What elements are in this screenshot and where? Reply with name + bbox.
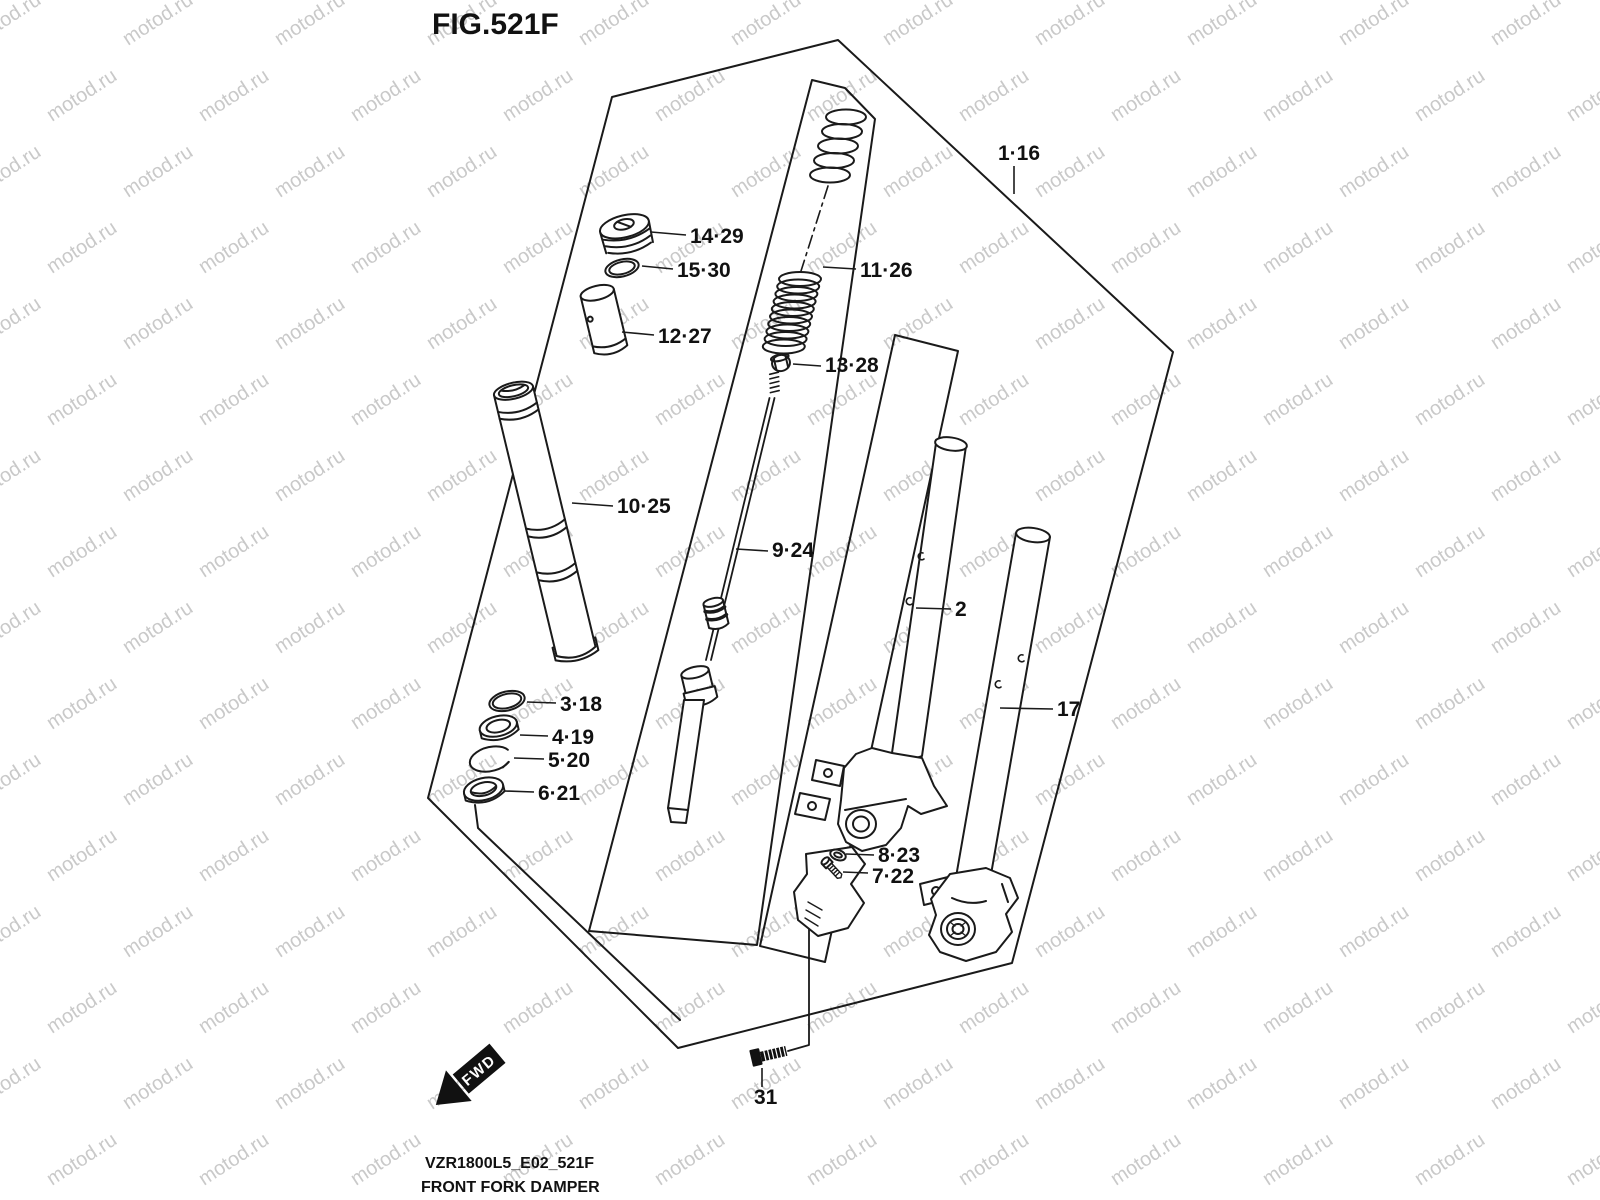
watermark-text: motod.ru xyxy=(1107,825,1185,886)
watermark-text: motod.ru xyxy=(0,445,45,506)
watermark-text: motod.ru xyxy=(1335,597,1413,658)
part-label-17: 17 xyxy=(1057,698,1080,721)
watermark-text: motod.ru xyxy=(1411,217,1489,278)
watermark-text: motod.ru xyxy=(43,369,121,430)
watermark-text: motod.ru xyxy=(879,1053,957,1114)
watermark-text: motod.ru xyxy=(347,977,425,1038)
watermark-text: motod.ru xyxy=(955,65,1033,126)
watermark-text: motod.ru xyxy=(271,749,349,810)
watermark-text: motod.ru xyxy=(1031,749,1109,810)
part-label-9-24: 9·24 xyxy=(772,539,814,562)
watermark-text: motod.ru xyxy=(1031,445,1109,506)
fork-cap-part-14-29 xyxy=(598,210,655,258)
watermark-text: motod.ru xyxy=(1183,0,1261,50)
watermark-text: motod.ru xyxy=(1487,749,1565,810)
watermark-text: motod.ru xyxy=(43,521,121,582)
leader-line-3-18 xyxy=(527,702,556,703)
watermark-text: motod.ru xyxy=(1563,673,1600,734)
watermark-text: motod.ru xyxy=(803,65,881,126)
watermark-text: motod.ru xyxy=(119,293,197,354)
watermark-text: motod.ru xyxy=(727,597,805,658)
watermark-text: motod.ru xyxy=(1031,141,1109,202)
watermark-text: motod.ru xyxy=(43,1129,121,1190)
watermark-text: motod.ru xyxy=(1107,673,1185,734)
watermark-text: motod.ru xyxy=(499,65,577,126)
watermark-text: motod.ru xyxy=(879,293,957,354)
leader-line-10-25 xyxy=(572,503,613,506)
watermark-text: motod.ru xyxy=(1487,141,1565,202)
leader-line-12-27 xyxy=(622,332,654,335)
watermark-text: motod.ru xyxy=(955,217,1033,278)
watermark-text: motod.ru xyxy=(1563,217,1600,278)
watermark-text: motod.ru xyxy=(1031,597,1109,658)
watermark-text: motod.ru xyxy=(1107,977,1185,1038)
watermark-text: motod.ru xyxy=(0,597,45,658)
watermark-text: motod.ru xyxy=(195,825,273,886)
watermark-text: motod.ru xyxy=(879,0,957,50)
part-label-2: 2 xyxy=(955,598,967,621)
watermark-text: motod.ru xyxy=(1107,217,1185,278)
leader-line-14-29 xyxy=(651,232,686,235)
watermark-text: motod.ru xyxy=(195,369,273,430)
watermark-text: motod.ru xyxy=(1487,0,1565,50)
watermark-text: motod.ru xyxy=(43,825,121,886)
watermark-text: motod.ru xyxy=(1411,369,1489,430)
watermark-text: motod.ru xyxy=(1031,0,1109,50)
watermark-text: motod.ru xyxy=(1335,901,1413,962)
watermark-text: motod.ru xyxy=(1487,597,1565,658)
watermark-text: motod.ru xyxy=(271,597,349,658)
watermark-text: motod.ru xyxy=(423,141,501,202)
watermark-text: motod.ru xyxy=(1335,1053,1413,1114)
watermark-text: motod.ru xyxy=(0,1053,45,1114)
watermark-text: motod.ru xyxy=(271,901,349,962)
watermark-text: motod.ru xyxy=(43,217,121,278)
axle-holder-part-2 xyxy=(794,748,947,936)
watermark-text: motod.ru xyxy=(0,141,45,202)
watermark-text: motod.ru xyxy=(727,749,805,810)
part-label-8-23: 8·23 xyxy=(878,844,920,867)
watermark-text: motod.ru xyxy=(0,293,45,354)
watermark-text: motod.ru xyxy=(195,977,273,1038)
watermark-text: motod.ru xyxy=(195,521,273,582)
part-label-3-18: 3·18 xyxy=(560,693,602,716)
watermark-text: motod.ru xyxy=(955,977,1033,1038)
watermark-text: motod.ru xyxy=(1107,369,1185,430)
watermark-text: motod.ru xyxy=(0,901,45,962)
watermark-text: motod.ru xyxy=(347,217,425,278)
watermark-text: motod.ru xyxy=(195,65,273,126)
part-label-5-20: 5·20 xyxy=(548,749,590,772)
watermark-text: motod.ru xyxy=(271,141,349,202)
part-label-4-19: 4·19 xyxy=(552,726,594,749)
watermark-text: motod.ru xyxy=(1411,1129,1489,1190)
watermark-text: motod.ru xyxy=(195,673,273,734)
watermark-text: motod.ru xyxy=(119,1053,197,1114)
leader-line-4-19 xyxy=(520,735,548,736)
part-label-12-27: 12·27 xyxy=(658,325,712,348)
watermark-text: motod.ru xyxy=(1259,977,1337,1038)
watermark-text: motod.ru xyxy=(43,673,121,734)
watermark-text: motod.ru xyxy=(119,0,197,50)
watermark-text: motod.ru xyxy=(727,445,805,506)
watermark-text: motod.ru xyxy=(1107,1129,1185,1190)
watermark-text: motod.ru xyxy=(347,673,425,734)
watermark-text: motod.ru xyxy=(119,749,197,810)
watermark-text: motod.ru xyxy=(347,65,425,126)
watermark-text: motod.ru xyxy=(1107,65,1185,126)
watermark-text: motod.ru xyxy=(1411,825,1489,886)
watermark-text: motod.ru xyxy=(43,65,121,126)
watermark-text: motod.ru xyxy=(1183,901,1261,962)
watermark-text: motod.ru xyxy=(651,1129,729,1190)
watermark-text: motod.ru xyxy=(1107,521,1185,582)
watermark-text: motod.ru xyxy=(1259,369,1337,430)
watermark-text: motod.ru xyxy=(1563,521,1600,582)
watermark-text: motod.ru xyxy=(575,1053,653,1114)
watermark-text: motod.ru xyxy=(119,445,197,506)
watermark-text: motod.ru xyxy=(1563,825,1600,886)
watermark-text: motod.ru xyxy=(1259,217,1337,278)
watermark-text: motod.ru xyxy=(195,1129,273,1190)
watermark-text: motod.ru xyxy=(43,977,121,1038)
watermark-text: motod.ru xyxy=(803,1129,881,1190)
leader-line-17 xyxy=(1000,708,1053,709)
watermark-text: motod.ru xyxy=(1031,1053,1109,1114)
oil-seal-part-4-19 xyxy=(477,712,519,744)
watermark-text: motod.ru xyxy=(0,749,45,810)
watermark-text: motod.ru xyxy=(1259,673,1337,734)
watermark-text: motod.ru xyxy=(803,977,881,1038)
watermark-text: motod.ru xyxy=(271,293,349,354)
rod-thread-tip xyxy=(766,372,782,392)
watermark-text: motod.ru xyxy=(271,1053,349,1114)
watermark-text: motod.ru xyxy=(1183,1053,1261,1114)
watermark-text: motod.ru xyxy=(1411,65,1489,126)
watermark-text: motod.ru xyxy=(1183,141,1261,202)
watermark-text: motod.ru xyxy=(1335,293,1413,354)
watermark-text: motod.ru xyxy=(1411,673,1489,734)
watermark-text: motod.ru xyxy=(423,901,501,962)
watermark-text: motod.ru xyxy=(1183,293,1261,354)
watermark-text: motod.ru xyxy=(499,977,577,1038)
leader-line-5-20 xyxy=(514,758,544,759)
watermark-text: motod.ru xyxy=(499,217,577,278)
watermark-text: motod.ru xyxy=(651,825,729,886)
part-label-6-21: 6·21 xyxy=(538,782,580,805)
parts-diagram: motod.rumotod.rumotod.rumotod.rumotod.ru… xyxy=(0,0,1600,1200)
watermark-text: motod.ru xyxy=(0,0,45,50)
watermark-text: motod.ru xyxy=(1031,293,1109,354)
part-label-10-25: 10·25 xyxy=(617,495,671,518)
watermark-text: motod.ru xyxy=(651,369,729,430)
figure-title: FIG.521F xyxy=(432,8,559,41)
leader-line-13-28 xyxy=(793,364,821,366)
watermark-text: motod.ru xyxy=(1563,65,1600,126)
part-label-7-22: 7·22 xyxy=(872,865,914,888)
watermark-text: motod.ru xyxy=(347,1129,425,1190)
footer-code: VZR1800L5_E02_521F xyxy=(425,1155,594,1172)
damper-cylinder-part-10-25 xyxy=(490,378,599,665)
watermark-text: motod.ru xyxy=(1411,521,1489,582)
watermark-text: motod.ru xyxy=(803,369,881,430)
watermark-text: motod.ru xyxy=(119,141,197,202)
leader-line-9-24 xyxy=(736,549,768,551)
watermark-text: motod.ru xyxy=(271,0,349,50)
watermark-text: motod.ru xyxy=(1487,1053,1565,1114)
watermark-text: motod.ru xyxy=(879,141,957,202)
watermark-text: motod.ru xyxy=(1335,445,1413,506)
watermark-text: motod.ru xyxy=(347,521,425,582)
watermark-text: motod.ru xyxy=(575,0,653,50)
watermark-text: motod.ru xyxy=(1487,901,1565,962)
watermark-text: motod.ru xyxy=(727,901,805,962)
watermark-text: motod.ru xyxy=(347,825,425,886)
leader-line-6-21 xyxy=(505,791,534,792)
watermark-text: motod.ru xyxy=(1411,977,1489,1038)
part-label-13-28: 13·28 xyxy=(825,354,879,377)
watermark-text: motod.ru xyxy=(1563,1129,1600,1190)
part-label-11-26: 11·26 xyxy=(860,259,913,282)
watermark-text: motod.ru xyxy=(651,977,729,1038)
watermark-layer: motod.rumotod.rumotod.rumotod.rumotod.ru… xyxy=(0,0,1600,1200)
parts-catalog-page: motod.rumotod.rumotod.rumotod.rumotod.ru… xyxy=(0,0,1600,1200)
watermark-text: motod.ru xyxy=(1487,293,1565,354)
leader-line-2 xyxy=(916,608,951,609)
watermark-text: motod.ru xyxy=(1183,749,1261,810)
watermark-text: motod.ru xyxy=(1259,521,1337,582)
watermark-text: motod.ru xyxy=(423,293,501,354)
watermark-text: motod.ru xyxy=(1335,0,1413,50)
sub-assembly-line xyxy=(475,805,680,1020)
watermark-text: motod.ru xyxy=(1183,445,1261,506)
watermark-text: motod.ru xyxy=(1335,141,1413,202)
watermark-text: motod.ru xyxy=(1031,901,1109,962)
watermark-text: motod.ru xyxy=(1487,445,1565,506)
watermark-text: motod.ru xyxy=(1563,977,1600,1038)
watermark-text: motod.ru xyxy=(727,0,805,50)
watermark-text: motod.ru xyxy=(1259,825,1337,886)
watermark-text: motod.ru xyxy=(195,217,273,278)
watermark-text: motod.ru xyxy=(347,369,425,430)
footer-title: FRONT FORK DAMPER xyxy=(421,1179,600,1196)
lock-nut-part-13-28 xyxy=(770,352,791,372)
watermark-text: motod.ru xyxy=(423,597,501,658)
watermark-text: motod.ru xyxy=(651,521,729,582)
watermark-text: motod.ru xyxy=(119,901,197,962)
watermark-text: motod.ru xyxy=(955,369,1033,430)
part-label-14-29: 14·29 xyxy=(690,225,744,248)
watermark-text: motod.ru xyxy=(1183,597,1261,658)
part-label-31: 31 xyxy=(754,1086,778,1109)
watermark-text: motod.ru xyxy=(651,65,729,126)
watermark-text: motod.ru xyxy=(1259,65,1337,126)
part-label-15-30: 15·30 xyxy=(677,259,731,282)
watermark-text: motod.ru xyxy=(423,445,501,506)
o-ring-part-15-30 xyxy=(603,256,640,280)
watermark-text: motod.ru xyxy=(1259,1129,1337,1190)
watermark-text: motod.ru xyxy=(271,445,349,506)
part-label-1-16: 1·16 xyxy=(998,142,1040,165)
leader-line-8-23 xyxy=(846,854,874,855)
watermark-text: motod.ru xyxy=(1335,749,1413,810)
watermark-text: motod.ru xyxy=(955,1129,1033,1190)
watermark-text: motod.ru xyxy=(1563,369,1600,430)
leader-line-7-22 xyxy=(843,872,868,873)
watermark-text: motod.ru xyxy=(119,597,197,658)
watermark-text: motod.ru xyxy=(499,825,577,886)
